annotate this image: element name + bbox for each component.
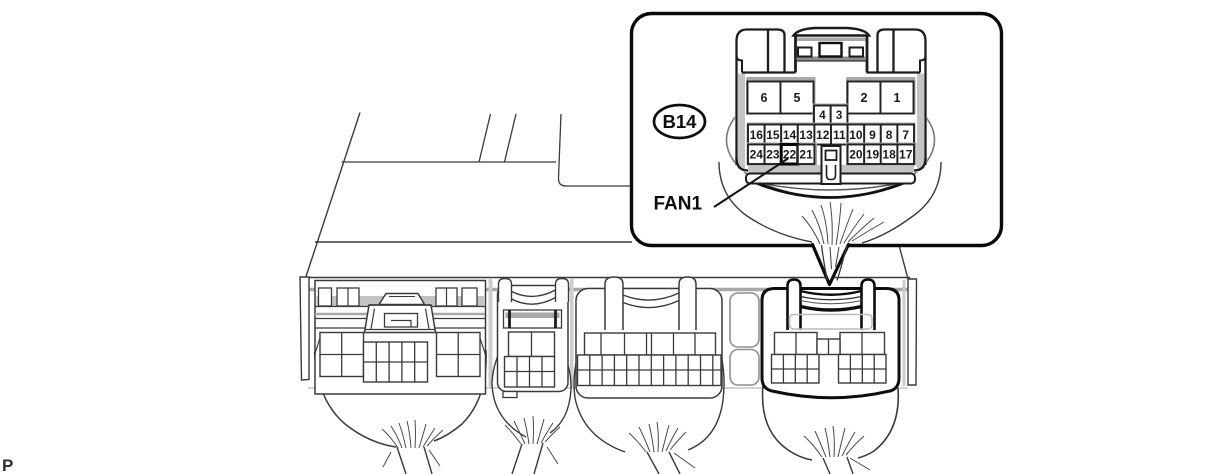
svg-text:B14: B14 [663,111,698,132]
svg-text:13: 13 [799,128,813,142]
svg-text:17: 17 [899,148,913,162]
svg-text:P: P [2,456,13,474]
svg-text:24: 24 [750,148,764,162]
svg-text:6: 6 [761,91,768,105]
svg-text:23: 23 [766,148,780,162]
svg-text:16: 16 [750,128,764,142]
svg-text:20: 20 [849,148,863,162]
svg-text:3: 3 [836,110,842,122]
svg-text:9: 9 [869,128,876,142]
svg-text:11: 11 [833,128,846,142]
svg-text:5: 5 [794,91,801,105]
svg-text:4: 4 [819,110,826,122]
svg-text:1: 1 [894,91,901,105]
svg-text:12: 12 [816,128,830,142]
svg-text:7: 7 [902,128,909,142]
svg-text:14: 14 [783,128,797,142]
svg-text:8: 8 [886,128,893,142]
svg-text:15: 15 [766,128,780,142]
svg-text:FAN1: FAN1 [654,194,703,215]
svg-text:18: 18 [882,148,896,162]
svg-text:2: 2 [861,91,868,105]
svg-text:10: 10 [849,128,863,142]
svg-text:19: 19 [866,148,880,162]
svg-text:21: 21 [799,148,813,162]
